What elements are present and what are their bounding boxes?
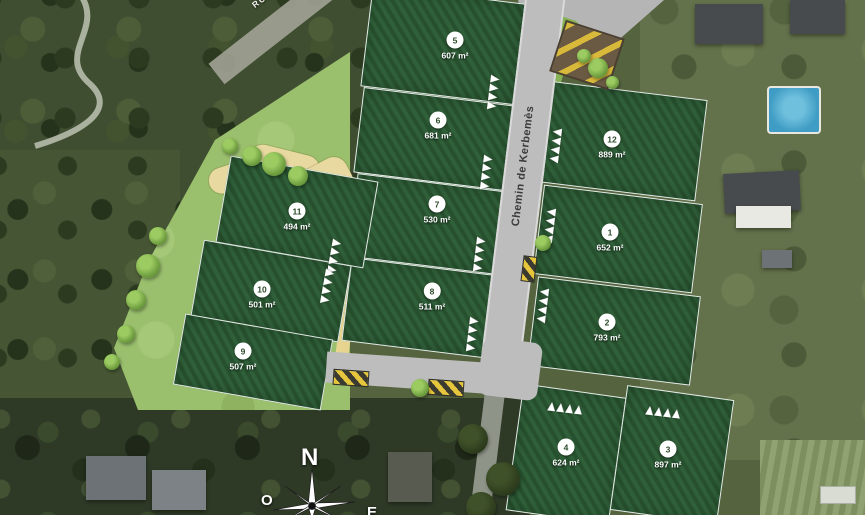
tree-canopy <box>458 424 488 454</box>
chevron-icon <box>556 402 565 412</box>
chevron-icon <box>546 208 556 217</box>
lot-tag-6[interactable]: 6681 m² <box>425 112 452 141</box>
lot-area-label: 501 m² <box>249 300 276 310</box>
lot-area-label: 681 m² <box>425 131 452 141</box>
chevron-icon <box>549 155 559 164</box>
chevron-icon <box>551 137 561 146</box>
lot-number-badge: 10 <box>254 281 271 298</box>
lot-tag-3[interactable]: 3897 m² <box>655 441 682 470</box>
house-roof <box>790 0 845 34</box>
lot-tag-7[interactable]: 7530 m² <box>424 196 451 225</box>
tree <box>242 146 262 166</box>
crosswalk-hatching <box>520 255 537 283</box>
lot-tag-11[interactable]: 11494 m² <box>284 203 311 232</box>
lot-area-label: 652 m² <box>597 243 624 253</box>
lot-tag-12[interactable]: 12889 m² <box>599 131 626 160</box>
chevron-icon <box>480 181 490 190</box>
tree <box>588 58 608 78</box>
chevron-icon <box>482 163 492 172</box>
chevron-icon <box>550 146 560 155</box>
lot-number-badge: 2 <box>599 314 616 331</box>
lot-area-label: 494 m² <box>284 222 311 232</box>
lot-area-label: 530 m² <box>424 215 451 225</box>
tree <box>126 290 146 310</box>
tree <box>104 354 120 370</box>
lot-area-label: 511 m² <box>419 302 445 312</box>
tree <box>117 325 135 343</box>
tree-canopy <box>486 462 520 496</box>
house-roof <box>695 4 763 44</box>
crosswalk-hatching <box>427 379 464 397</box>
lot-area-label: 607 m² <box>442 51 469 61</box>
lot-number-badge: 7 <box>429 196 446 213</box>
lot-tag-4[interactable]: 4624 m² <box>553 439 580 468</box>
tree-canopy <box>466 492 496 515</box>
tree <box>411 379 429 397</box>
chevron-icon <box>489 83 499 92</box>
lot-number-badge: 3 <box>660 441 677 458</box>
tree <box>262 152 286 176</box>
lot-number-badge: 1 <box>602 224 619 241</box>
lot-number-badge: 11 <box>289 203 306 220</box>
lot-number-badge: 9 <box>235 343 252 360</box>
lot-area-label: 897 m² <box>655 460 682 470</box>
lot-tag-9[interactable]: 9507 m² <box>230 343 257 372</box>
lot-area-label: 624 m² <box>553 458 580 468</box>
chevron-icon <box>332 238 342 247</box>
lot-tag-10[interactable]: 10501 m² <box>249 281 276 310</box>
tree <box>535 235 551 251</box>
swimming-pool <box>767 86 821 134</box>
compass-north-label: N <box>301 444 318 472</box>
chevron-icon <box>329 256 339 265</box>
chevron-icon <box>671 409 680 419</box>
chevron-icon <box>467 334 477 343</box>
chevron-icon <box>320 295 330 304</box>
chevron-icon <box>537 306 547 315</box>
greenhouse-roof <box>820 486 856 504</box>
lot-area-label: 889 m² <box>599 150 626 160</box>
chevron-icon <box>544 226 554 235</box>
chevron-icon <box>330 247 340 256</box>
chevron-icon <box>476 236 486 245</box>
chevron-icon <box>468 325 478 334</box>
forest-trail <box>20 0 180 174</box>
building <box>152 470 206 510</box>
compass-east-label: E <box>367 504 377 515</box>
tree <box>577 49 591 63</box>
chevron-icon <box>483 154 493 163</box>
site-plan-map: RUE DU MOULIN Chemin de Kerbemès 5607 m²… <box>0 0 865 515</box>
lot-number-badge: 4 <box>558 439 575 456</box>
chevron-icon <box>323 277 333 286</box>
lot-tag-8[interactable]: 8511 m² <box>419 283 445 312</box>
chevron-icon <box>488 92 498 101</box>
compass-rose: N O E <box>255 430 385 515</box>
road-junction <box>477 337 544 402</box>
house-wall <box>736 206 791 228</box>
chevron-icon <box>536 315 546 324</box>
chevron-icon <box>325 268 335 277</box>
chevron-icon <box>473 263 483 272</box>
chevron-icon <box>662 408 671 418</box>
chevron-icon <box>481 172 491 181</box>
chevron-icon <box>545 217 555 226</box>
chevron-icon <box>552 128 562 137</box>
chevron-icon <box>322 286 332 295</box>
chevron-icon <box>490 74 500 83</box>
chevron-icon <box>547 401 556 411</box>
crosswalk-hatching <box>332 369 369 387</box>
compass-west-label: O <box>261 492 273 509</box>
chevron-icon <box>564 404 573 414</box>
tree <box>288 166 308 186</box>
lot-number-badge: 5 <box>447 32 464 49</box>
tree <box>136 254 160 278</box>
lot-area-label: 793 m² <box>594 333 621 343</box>
chevron-icon <box>475 245 485 254</box>
tree <box>222 138 238 154</box>
lot-number-badge: 12 <box>604 131 621 148</box>
building <box>86 456 146 500</box>
chevron-icon <box>469 316 479 325</box>
lot-tag-5[interactable]: 5607 m² <box>442 32 469 61</box>
chevron-icon <box>654 406 663 416</box>
lot-area-label: 507 m² <box>230 362 257 372</box>
outbuilding <box>762 250 792 268</box>
building <box>388 452 432 502</box>
chevron-icon <box>466 343 476 352</box>
chevron-icon <box>645 405 654 415</box>
chevron-icon <box>539 288 549 297</box>
chevron-icon <box>538 297 548 306</box>
tree <box>149 227 167 245</box>
chevron-icon <box>474 254 484 263</box>
tree <box>606 76 619 89</box>
chevron-icon <box>487 101 497 110</box>
lot-number-badge: 6 <box>430 112 447 129</box>
lot-tag-1[interactable]: 1652 m² <box>597 224 624 253</box>
lot-number-badge: 8 <box>424 283 441 300</box>
compass-star <box>255 430 385 515</box>
chevron-icon <box>573 405 582 415</box>
lot-tag-2[interactable]: 2793 m² <box>594 314 621 343</box>
